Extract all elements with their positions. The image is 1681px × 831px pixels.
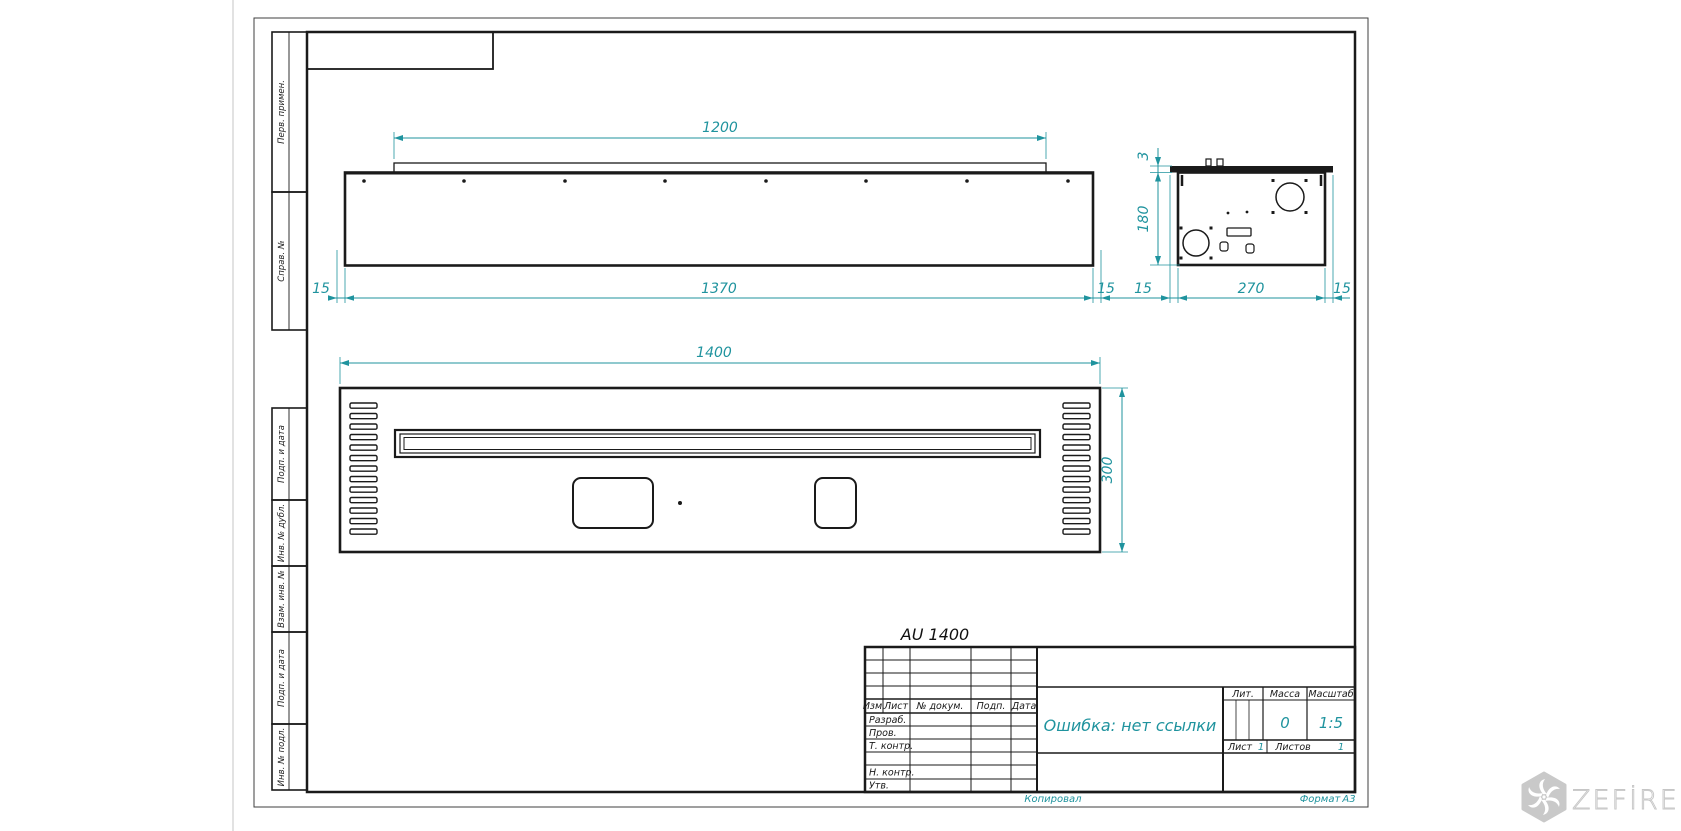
drawing-sheet-viewport: Перв. примен. Справ. № Подп. и дата Инв.… bbox=[0, 0, 1681, 831]
sheets-value: 1 bbox=[1338, 742, 1344, 753]
row-tkontr: Т. контр. bbox=[869, 741, 913, 752]
row-nkontr: Н. контр. bbox=[869, 768, 915, 779]
plan-pilot-hole bbox=[678, 501, 682, 505]
stamp-podp-data-2: Подп. и дата bbox=[277, 649, 287, 707]
lit-label: Лит. bbox=[1231, 689, 1254, 700]
row-razrab: Разраб. bbox=[869, 715, 906, 726]
col-data: Дата bbox=[1011, 701, 1037, 712]
col-doc: № докум. bbox=[916, 701, 964, 712]
mass-label: Масса bbox=[1270, 689, 1300, 700]
dim-15-front-right: 15 bbox=[1097, 281, 1115, 297]
dim-1200-label: 1200 bbox=[702, 120, 738, 136]
dim-180-label: 180 bbox=[1136, 206, 1152, 233]
scale-value: 1:5 bbox=[1319, 714, 1343, 732]
document-name: Ошибка: нет ссылки bbox=[1044, 716, 1217, 735]
copied-by-label: Копировал bbox=[1024, 794, 1082, 805]
sheet-outer-border bbox=[254, 18, 1368, 807]
col-list: Лист bbox=[883, 701, 909, 712]
dim-1370-label: 1370 bbox=[701, 281, 737, 297]
col-podp: Подп. bbox=[977, 701, 1006, 712]
dim-3-label: 3 bbox=[1136, 152, 1152, 161]
format-label: Формат bbox=[1300, 794, 1342, 805]
row-prov: Пров. bbox=[869, 728, 897, 739]
dim-15-side-left: 15 bbox=[1134, 281, 1152, 297]
dim-1400-label: 1400 bbox=[696, 345, 732, 361]
zefire-logo-text: ZEFİRE bbox=[1572, 785, 1679, 816]
stamp-podp-data-1: Подп. и дата bbox=[277, 425, 287, 483]
stamp-perv-primen: Перв. примен. bbox=[277, 80, 287, 144]
dim-15-side-right: 15 bbox=[1333, 281, 1351, 297]
stamp-inv-podl: Инв. № подл. bbox=[277, 728, 287, 787]
designation-label: AU 1400 bbox=[900, 625, 969, 644]
sheets-label: Листов bbox=[1274, 742, 1311, 753]
sheet-label: Лист bbox=[1227, 742, 1253, 753]
dim-300-label: 300 bbox=[1100, 457, 1116, 484]
col-izm: Изм. bbox=[863, 701, 885, 712]
stamp-inv-dubl: Инв. № дубл. bbox=[277, 504, 287, 562]
format-value: A3 bbox=[1341, 794, 1355, 805]
stamp-vzam-inv: Взам. инв. № bbox=[277, 570, 287, 628]
zefire-logo-icon bbox=[1523, 773, 1565, 821]
dim-15-front-left: 15 bbox=[312, 281, 330, 297]
scale-label: Масштаб bbox=[1308, 689, 1353, 700]
mass-value: 0 bbox=[1280, 714, 1290, 732]
dim-270-label: 270 bbox=[1238, 281, 1265, 297]
row-utv: Утв. bbox=[869, 781, 889, 792]
stamp-sprav-no: Справ. № bbox=[277, 240, 287, 282]
sheet-value: 1 bbox=[1258, 742, 1264, 753]
